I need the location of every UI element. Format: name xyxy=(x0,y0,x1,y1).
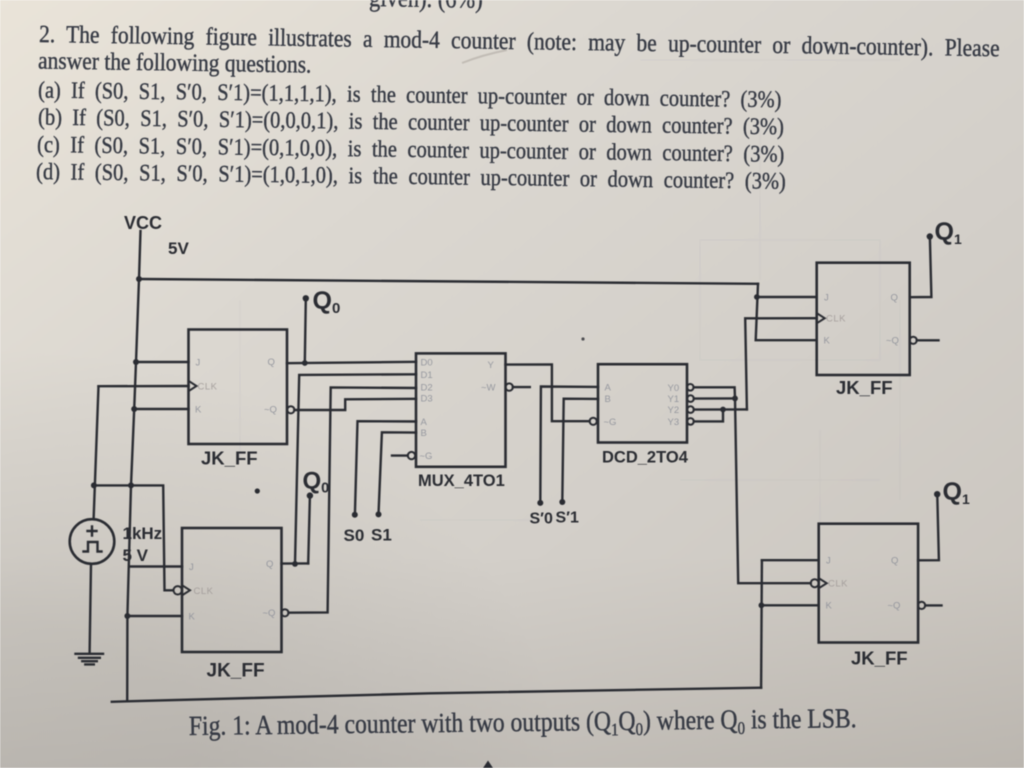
svg-text:Q: Q xyxy=(268,357,275,368)
svg-text:JK_FF: JK_FF xyxy=(207,661,265,682)
svg-text:J: J xyxy=(196,358,201,369)
svg-text:Q: Q xyxy=(266,559,273,570)
svg-text:J: J xyxy=(826,556,831,567)
svg-text:Y0: Y0 xyxy=(668,383,680,394)
svg-text:Y1: Y1 xyxy=(668,394,680,405)
svg-text:JK_FF: JK_FF xyxy=(851,648,908,669)
svg-text:~Q: ~Q xyxy=(888,601,901,612)
svg-text:K: K xyxy=(824,336,831,347)
svg-text:B: B xyxy=(421,428,427,439)
svg-text:5 V: 5 V xyxy=(123,546,149,565)
svg-text:S′0: S′0 xyxy=(530,511,554,528)
svg-text:Q: Q xyxy=(891,556,898,567)
svg-text:~Q: ~Q xyxy=(886,336,899,347)
svg-text:S1: S1 xyxy=(371,526,392,545)
svg-text:S′1: S′1 xyxy=(556,510,580,527)
svg-text:D3: D3 xyxy=(421,394,433,405)
svg-text:DCD_2TO4: DCD_2TO4 xyxy=(602,449,689,467)
svg-text:Y2: Y2 xyxy=(668,405,680,416)
svg-text:J: J xyxy=(189,562,194,573)
svg-text:K: K xyxy=(826,601,833,612)
svg-text:CLK: CLK xyxy=(828,579,848,590)
svg-text:B: B xyxy=(605,394,611,405)
svg-text:~W: ~W xyxy=(481,383,496,394)
svg-text:answer the following questions: answer the following questions. xyxy=(38,47,312,79)
svg-text:~G: ~G xyxy=(604,417,617,428)
svg-text:CLK: CLK xyxy=(826,314,846,325)
svg-text:JK_FF: JK_FF xyxy=(201,448,258,469)
svg-text:A: A xyxy=(605,382,612,393)
svg-text:S0: S0 xyxy=(344,526,365,545)
svg-text:1kHz: 1kHz xyxy=(123,524,163,543)
svg-text:MUX_4TO1: MUX_4TO1 xyxy=(418,472,505,490)
svg-text:D0: D0 xyxy=(421,357,433,368)
svg-text:JK_FF: JK_FF xyxy=(836,377,893,398)
svg-text:J: J xyxy=(824,293,829,304)
svg-text:K: K xyxy=(195,405,202,416)
svg-text:~G: ~G xyxy=(420,451,433,462)
svg-text:CLK: CLK xyxy=(194,586,214,597)
svg-text:5V: 5V xyxy=(168,239,189,258)
svg-text:K: K xyxy=(189,612,196,623)
svg-text:D1: D1 xyxy=(421,370,433,381)
svg-text:Q: Q xyxy=(891,293,898,304)
svg-text:D2: D2 xyxy=(421,383,433,394)
svg-text:~Q: ~Q xyxy=(263,608,276,619)
svg-text:Y3: Y3 xyxy=(668,417,680,428)
svg-text:Y: Y xyxy=(488,360,495,371)
svg-text:A: A xyxy=(421,417,428,428)
svg-text:CLK: CLK xyxy=(198,382,218,393)
svg-text:~Q: ~Q xyxy=(264,405,277,416)
svg-text:given). (6%): given). (6%) xyxy=(369,0,483,14)
svg-text:VCC: VCC xyxy=(124,213,162,233)
